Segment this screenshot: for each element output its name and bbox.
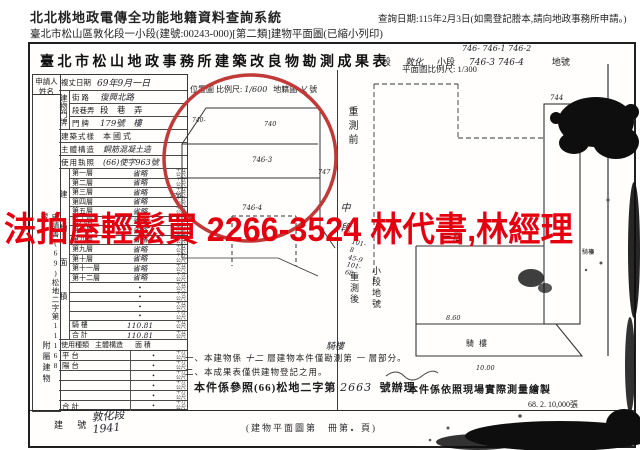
door-group-label: 建物門牌 <box>59 91 70 129</box>
map-lot-740: 740 <box>264 120 276 128</box>
registry-query-page: 北北桃地政電傳全功能地籍資料查詢系統 查詢日期:115年2月3日(如需登記謄本,… <box>0 0 640 450</box>
print-run-info: 68. 2. 10,000張 <box>528 399 578 410</box>
cadastre-mark: 乂 <box>299 85 307 94</box>
map-lot-776: 776 <box>169 192 181 200</box>
applicant-label: 申請人姓名 <box>33 75 60 95</box>
annex-row: •平方公尺 <box>59 381 187 391</box>
locmap-scale: 1/600 <box>244 85 267 94</box>
area-group-label: 建物面積 <box>59 169 70 339</box>
plan-dim-1000: 10.00 <box>476 364 495 372</box>
after-seg-lot-label: 小段地號 <box>370 266 383 310</box>
watermark-ad-text: 法拍屋輕鬆買 2266-3524 林代書,林經理 <box>4 202 612 251</box>
annex-rows: 平 台•平方公尺 陽 台•平方公尺 •平方公尺 •平方公尺 •平方公尺 合 計•… <box>59 351 187 411</box>
survey-date-label: 複丈日期 <box>59 77 97 88</box>
survey-date-value: 69年9月一日 <box>97 76 187 89</box>
arcade-row: 騎 樓110.81平方公尺 <box>70 321 187 331</box>
plan-scale-caption: 平面圖比例尺: 1/300 <box>402 64 477 74</box>
building-no-label: 建 號 <box>54 418 92 431</box>
note1-handwritten-arcade: 騎樓 <box>326 339 344 352</box>
cadastre-label: 地籍圖 <box>273 85 297 94</box>
plan-arcade-label: 騎樓 <box>466 338 492 348</box>
annex-row: •平方公尺 <box>59 391 187 401</box>
note-survey-method: 本件係依照現場實際測量繪製 <box>408 381 551 396</box>
note-1: 一、本建物係 十二 層建物本件僅勘測第 一 層部分。 <box>185 352 407 364</box>
system-title: 北北桃地政電傳全功能地籍資料查詢系統 <box>30 7 282 26</box>
map-lot-740a: 740- <box>192 117 205 124</box>
location-map-caption: 位置圖 比例尺: 1/600 地籍圖 乂 號 <box>190 84 317 95</box>
before-resurvey-label: 重測前 <box>344 106 359 148</box>
annex-group-label: 附屬建物 <box>41 341 52 407</box>
plan-dim-860: 8.60 <box>446 314 460 322</box>
after-resurvey-label: 重測後 <box>348 272 361 305</box>
lot-numbers-top: 746- 746-1 746-2 <box>462 44 531 53</box>
map-lot-746-3: 746-3 <box>252 156 273 164</box>
locmap-label: 位置圖 比例尺: <box>190 85 242 94</box>
survey-date-row: 複丈日期 69年9月一日 <box>59 75 187 91</box>
plan-lot-744: 744 <box>550 94 563 102</box>
annex-row: 陽 台•平方公尺 <box>59 361 187 371</box>
note-reference: 本件係參照(66)松地二字第 2663 號辦理 <box>194 379 416 395</box>
plan-book-page-ref: (建物平面圖第 冊第 頁) <box>246 421 377 434</box>
annex-row: •平方公尺 <box>59 371 187 381</box>
query-date: 查詢日期:115年2月3日(如需登記謄本,請向地政事務所申請。) <box>378 11 627 25</box>
note-2: 二、本成果表僅供建物登記之用。 <box>185 366 328 378</box>
building-no-value: 敦化段 1941 <box>91 408 139 436</box>
cadastre-no-label: 號 <box>309 85 317 94</box>
total-row: 合 計110.81平方公尺 <box>70 331 187 341</box>
document-subtitle: 臺北市松山區敦化段一小段(建號:00243-000)[第二類]建物平面圖(已縮小… <box>30 26 383 41</box>
